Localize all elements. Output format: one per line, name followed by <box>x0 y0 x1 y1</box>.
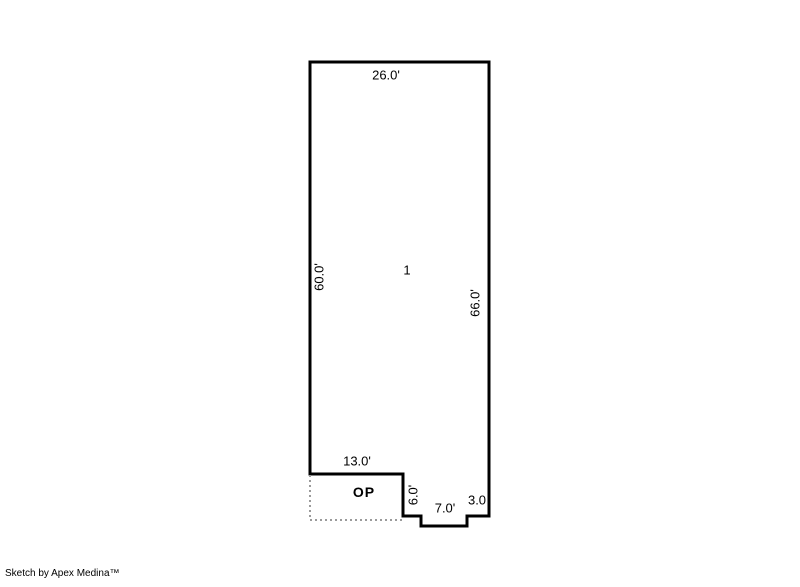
dimension-right-offset: 3.0 <box>468 494 486 507</box>
building-outline <box>310 62 489 526</box>
floorplan-sketch <box>0 0 800 587</box>
dimension-porch-depth: 6.0' <box>407 485 420 506</box>
dimension-top-width: 26.0' <box>372 69 400 82</box>
dimension-right-height: 66.0' <box>469 289 482 317</box>
dimension-notch-width: 7.0' <box>435 502 456 515</box>
dimension-left-height: 60.0' <box>313 263 326 291</box>
porch-abbrev-label: OP <box>353 485 375 499</box>
dimension-porch-width: 13.0' <box>343 455 371 468</box>
sketch-page: 26.0' 60.0' 1 66.0' 13.0' OP 6.0' 7.0' 3… <box>0 0 800 587</box>
area-number-label: 1 <box>403 264 410 277</box>
sketch-credit: Sketch by Apex Medina™ <box>5 568 120 579</box>
